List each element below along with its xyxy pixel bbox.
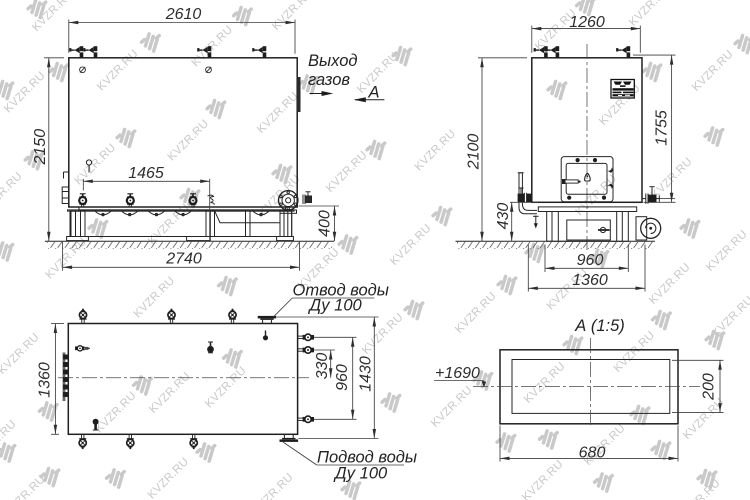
- svg-text:А (1:5): А (1:5): [574, 317, 625, 335]
- svg-text:330: 330: [314, 353, 331, 380]
- svg-text:200: 200: [701, 373, 718, 401]
- svg-text:2740: 2740: [165, 250, 202, 267]
- svg-text:Ду 100: Ду 100: [333, 465, 388, 483]
- svg-text:1465: 1465: [128, 165, 164, 182]
- svg-text:Выход: Выход: [308, 52, 358, 70]
- svg-text:430: 430: [495, 203, 512, 230]
- svg-text:1360: 1360: [572, 272, 608, 289]
- svg-text:960: 960: [334, 364, 351, 391]
- svg-text:960: 960: [577, 252, 604, 269]
- svg-text:+1690: +1690: [435, 365, 480, 382]
- svg-text:1260: 1260: [569, 14, 605, 31]
- svg-text:А: А: [368, 84, 380, 102]
- svg-text:Ду 100: Ду 100: [308, 297, 363, 315]
- svg-text:400: 400: [317, 210, 334, 237]
- svg-text:680: 680: [579, 444, 606, 461]
- svg-text:1430: 1430: [358, 356, 375, 392]
- svg-text:газов: газов: [308, 71, 350, 89]
- svg-text:1755: 1755: [654, 110, 671, 146]
- svg-text:1360: 1360: [37, 362, 54, 398]
- svg-text:2100: 2100: [466, 134, 483, 171]
- svg-text:2150: 2150: [32, 129, 49, 166]
- svg-text:2610: 2610: [165, 6, 202, 23]
